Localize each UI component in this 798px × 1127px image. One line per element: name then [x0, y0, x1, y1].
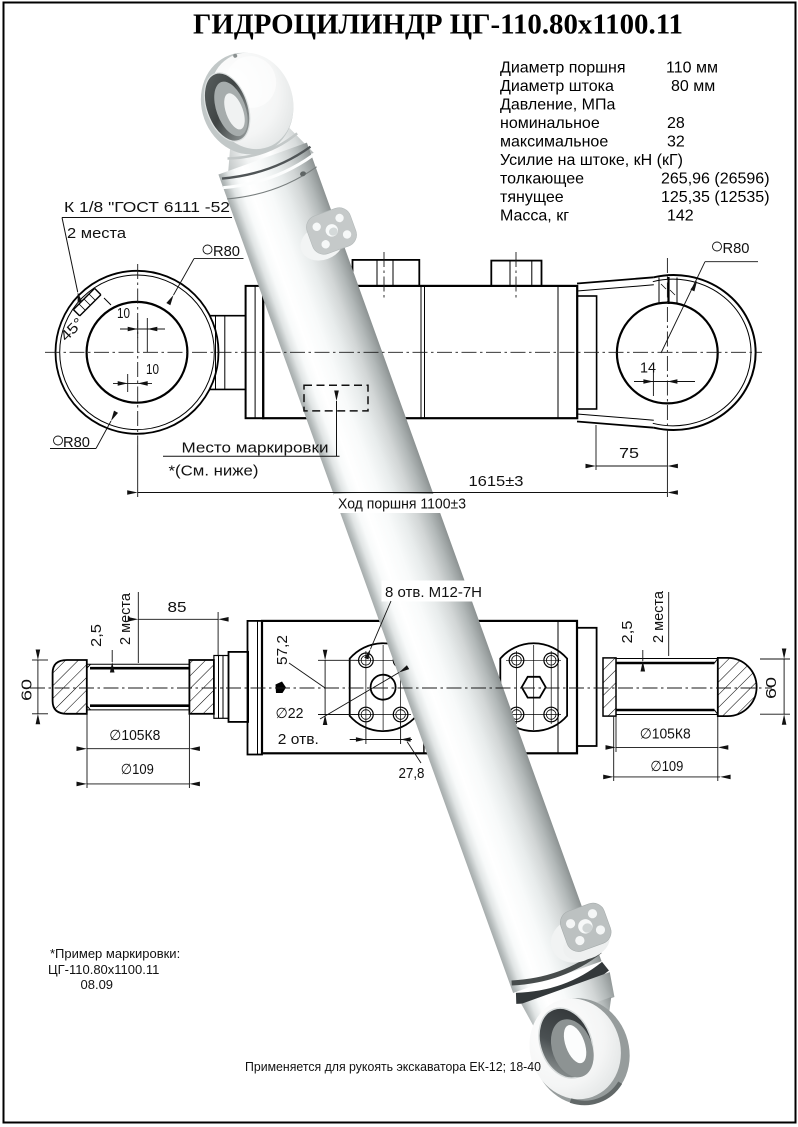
svg-text:2 отв.: 2 отв.	[278, 732, 319, 748]
svg-text:1615±3: 1615±3	[469, 474, 524, 490]
svg-text:10: 10	[146, 362, 159, 378]
svg-text:2 места: 2 места	[67, 225, 127, 242]
svg-text:75: 75	[619, 446, 639, 462]
svg-text:∅109: ∅109	[121, 762, 154, 778]
svg-text:60: 60	[20, 679, 36, 701]
svg-text:32: 32	[667, 134, 685, 151]
svg-text:2 места: 2 места	[118, 592, 134, 645]
svg-text:∅22: ∅22	[276, 706, 304, 722]
svg-text:максимальное: максимальное	[500, 134, 608, 151]
svg-text:2,5: 2,5	[620, 621, 636, 644]
svg-text:толкающее: толкающее	[500, 171, 584, 188]
svg-text:8 отв. М12-7Н: 8 отв. М12-7Н	[385, 585, 482, 601]
svg-text:27,8: 27,8	[399, 766, 425, 782]
svg-text:ГИДРОЦИЛИНДР ЦГ-110.80х1100.11: ГИДРОЦИЛИНДР ЦГ-110.80х1100.11	[193, 10, 683, 41]
svg-text:2 места: 2 места	[651, 590, 667, 643]
svg-text:К 1/8 "ГОСТ 6111 -52: К 1/8 "ГОСТ 6111 -52	[64, 199, 230, 216]
svg-text:2,5: 2,5	[89, 624, 105, 647]
svg-text:Усилие на штоке, кН (кГ): Усилие на штоке, кН (кГ)	[500, 152, 683, 169]
svg-text:60: 60	[764, 677, 780, 699]
svg-text:∅109: ∅109	[650, 759, 683, 775]
svg-text:125,35 (12535): 125,35 (12535)	[661, 189, 770, 206]
svg-text:ЦГ-110.80х1100.11: ЦГ-110.80х1100.11	[48, 962, 159, 977]
svg-text:Диаметр поршня: Диаметр поршня	[500, 60, 626, 77]
svg-text:R80: R80	[63, 434, 90, 451]
svg-text:Масса, кг: Масса, кг	[500, 208, 569, 225]
svg-text:08.09: 08.09	[81, 977, 114, 992]
svg-text:10: 10	[117, 306, 130, 322]
svg-text:∅105К8: ∅105К8	[109, 728, 160, 744]
svg-text:142: 142	[667, 208, 694, 225]
svg-text:85: 85	[168, 600, 187, 616]
svg-text:*Пример маркировки:: *Пример маркировки:	[50, 946, 180, 961]
svg-text:номинальное: номинальное	[500, 115, 600, 132]
svg-text:∅105К8: ∅105К8	[640, 727, 691, 743]
svg-text:80 мм: 80 мм	[671, 78, 715, 95]
svg-text:тянущее: тянущее	[500, 189, 564, 206]
svg-text:265,96 (26596): 265,96 (26596)	[661, 171, 770, 188]
svg-text:R80: R80	[213, 243, 240, 260]
svg-text:57,2: 57,2	[275, 635, 291, 665]
svg-text:28: 28	[667, 115, 685, 132]
svg-text:Диаметр штока: Диаметр штока	[500, 78, 614, 95]
svg-text:14: 14	[640, 361, 656, 377]
svg-text:Применяется для рукоять экскав: Применяется для рукоять экскаватора ЕК-1…	[245, 1059, 541, 1074]
svg-text:Ход поршня 1100±3: Ход поршня 1100±3	[338, 497, 466, 513]
svg-text:Место маркировки: Место маркировки	[182, 440, 329, 457]
svg-text:Давление, МПа: Давление, МПа	[500, 97, 615, 114]
svg-text:*(См. ниже): *(См. ниже)	[169, 463, 259, 480]
svg-text:110 мм: 110 мм	[666, 60, 718, 77]
svg-text:R80: R80	[723, 240, 750, 257]
